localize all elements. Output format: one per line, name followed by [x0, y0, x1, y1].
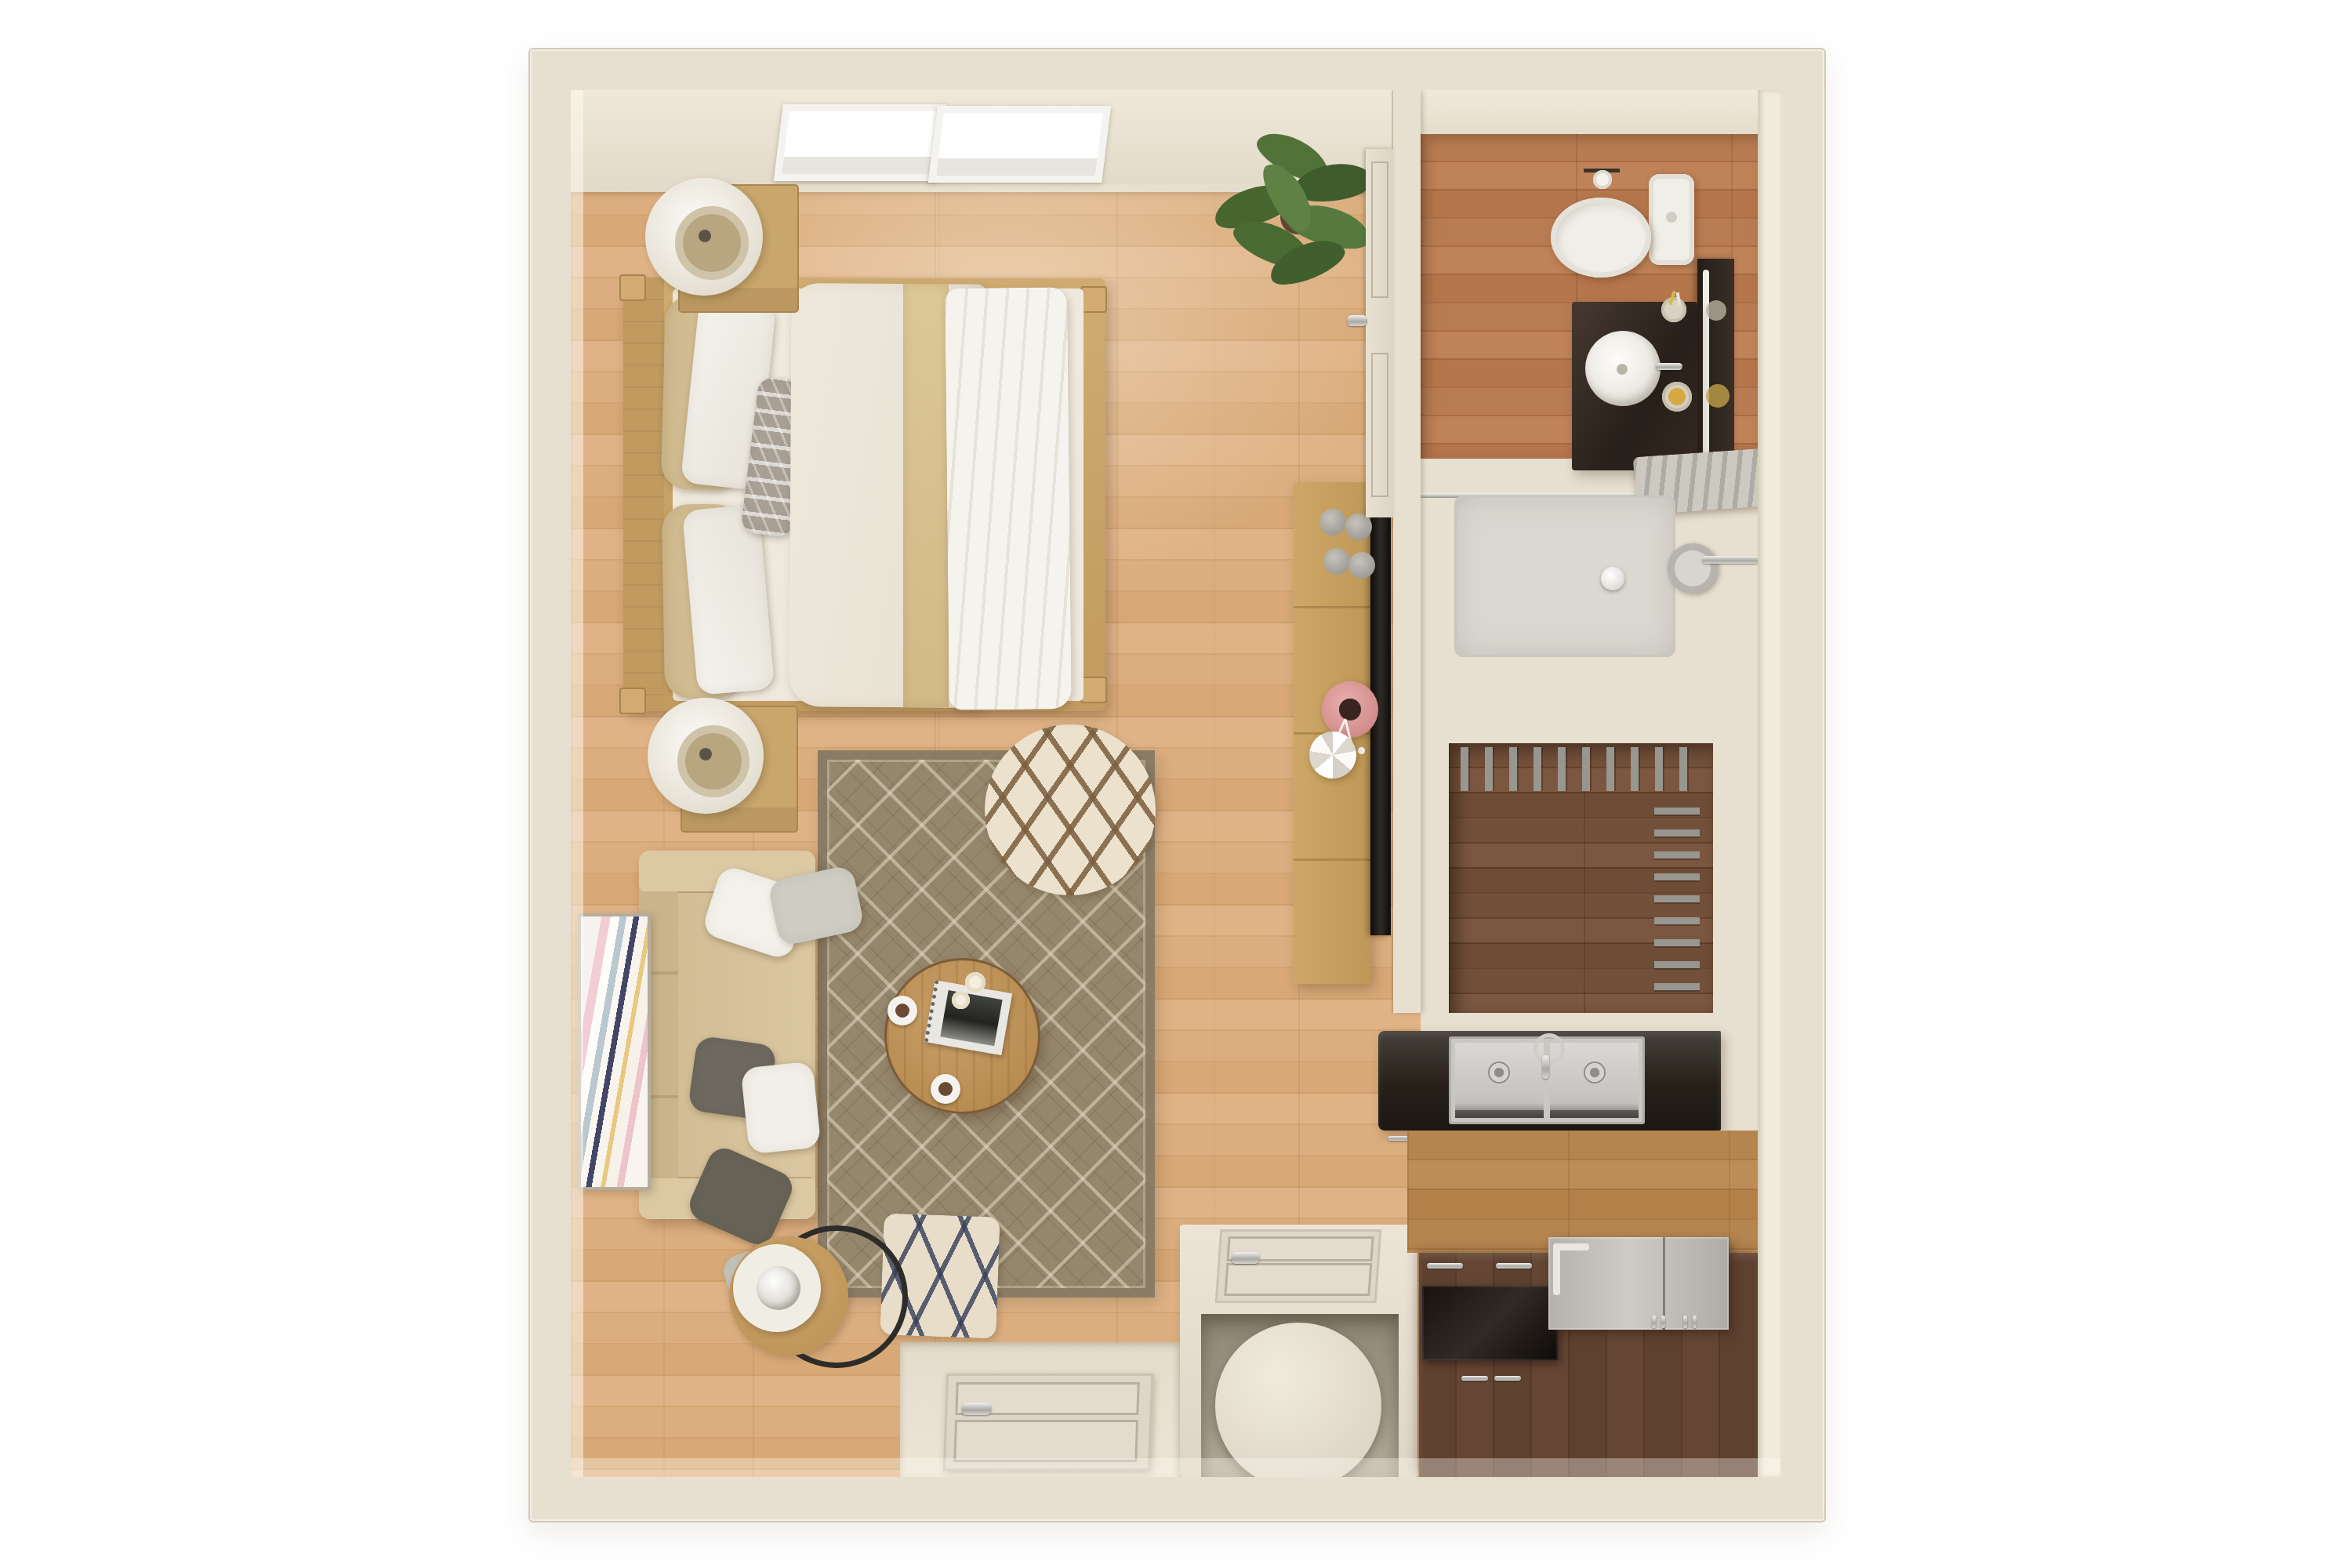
candle	[965, 972, 985, 993]
table-lamp-glass-bulb	[757, 1266, 800, 1310]
cabinet-handle	[1427, 1263, 1463, 1269]
toothbrush-cup	[1661, 297, 1686, 322]
decor-cup	[1323, 548, 1350, 575]
bottom-inner-wall-face	[571, 1458, 1780, 1477]
shower-head	[1668, 543, 1718, 593]
flower	[1358, 747, 1365, 754]
soap	[1668, 388, 1686, 405]
round-stool	[1215, 1323, 1381, 1477]
soap-dish	[1662, 382, 1692, 412]
toilet-bowl	[1551, 198, 1651, 278]
sphere-table-lamp	[648, 698, 764, 814]
nook-door-handle	[1231, 1252, 1260, 1264]
fridge-pin-handle	[1683, 1316, 1687, 1328]
shower-drain	[1601, 567, 1624, 590]
bed-post	[619, 688, 646, 714]
cabinet-handle	[1461, 1376, 1488, 1381]
lamp-shade-ring	[675, 206, 749, 280]
sofa-pillow-white	[741, 1061, 822, 1154]
coffee-cup	[887, 996, 917, 1025]
potted-plant	[1211, 133, 1380, 294]
bed-headboard	[623, 278, 664, 711]
sink-drain	[1584, 1062, 1606, 1083]
cabinet-handle	[1496, 1263, 1532, 1269]
vanity-faucet	[1656, 363, 1682, 370]
bathroom-door-handle	[1347, 315, 1367, 326]
bed-post	[1080, 677, 1107, 703]
mirror-cup-reflection	[1706, 300, 1726, 321]
shower-pan	[1454, 495, 1675, 657]
magazine-cover-photo	[940, 990, 1002, 1046]
closet-hangers-top-rod	[1461, 747, 1700, 791]
lamp-finial	[699, 230, 711, 242]
double-bowl-sink	[1449, 1036, 1645, 1124]
gooseneck-faucet	[1534, 1033, 1565, 1065]
sink-drain	[1617, 364, 1628, 375]
coffee-cup	[931, 1074, 960, 1104]
mirror-soap-reflection	[1706, 384, 1730, 408]
faucet-spout	[1542, 1055, 1549, 1079]
lamp-shade-ring	[677, 725, 750, 797]
left-inner-wall-face	[571, 90, 583, 1477]
floor-plan-stage	[0, 0, 2352, 1568]
fridge-pin-handle	[1652, 1316, 1656, 1328]
fridge-pin-handle	[1693, 1316, 1697, 1328]
skylight-window	[928, 106, 1111, 183]
kitchen-floor	[1407, 1131, 1780, 1253]
nook-cabinet-door	[1215, 1229, 1382, 1303]
tan-blanket-band	[903, 284, 949, 707]
flush-button	[1666, 212, 1677, 223]
bed-post	[619, 274, 646, 301]
decor-cup	[1345, 514, 1372, 540]
magazine	[924, 980, 1012, 1055]
toilet-tank	[1649, 174, 1694, 265]
closet-hangers-side-rod	[1654, 808, 1700, 1005]
door-panel	[1224, 1263, 1372, 1296]
skylight-window	[774, 104, 946, 181]
entry-door	[943, 1374, 1153, 1471]
lamp-finial	[699, 748, 712, 760]
refrigerator	[1548, 1237, 1729, 1330]
door-panel	[953, 1420, 1138, 1462]
entry-door-handle	[961, 1403, 992, 1415]
coffee	[895, 1004, 909, 1018]
bed-post	[1080, 286, 1107, 313]
candle	[952, 991, 970, 1009]
cabinet-handle	[1494, 1376, 1521, 1381]
door-molding	[1371, 162, 1388, 298]
toilet-paper-holder	[1584, 167, 1620, 191]
right-inner-wall-face	[1758, 90, 1780, 1477]
divider-wall	[1393, 90, 1421, 1013]
door-molding	[1371, 353, 1388, 497]
bathroom-door-open	[1366, 149, 1393, 517]
sink-drain	[1488, 1062, 1510, 1083]
vessel-sink	[1585, 331, 1661, 406]
shower-arm	[1702, 556, 1760, 564]
apartment-interior	[571, 90, 1780, 1477]
fridge-pin-handle	[1661, 1316, 1665, 1328]
abstract-wall-art	[578, 913, 651, 1190]
round-lattice-pouf	[985, 724, 1156, 895]
fridge-handle	[1553, 1243, 1560, 1295]
mirror-towel-bar	[1703, 270, 1709, 456]
decor-cup	[1319, 509, 1346, 535]
cooktop	[1422, 1286, 1558, 1360]
sphere-table-lamp	[645, 178, 763, 296]
bathroom-mirror	[1697, 259, 1734, 466]
white-faceted-vase	[1309, 731, 1356, 779]
white-throw-blanket	[945, 287, 1072, 710]
decor-cup	[1348, 552, 1375, 579]
coffee	[938, 1082, 953, 1096]
tp-roll	[1593, 170, 1612, 189]
bathroom-top-wall-face	[1421, 90, 1758, 134]
